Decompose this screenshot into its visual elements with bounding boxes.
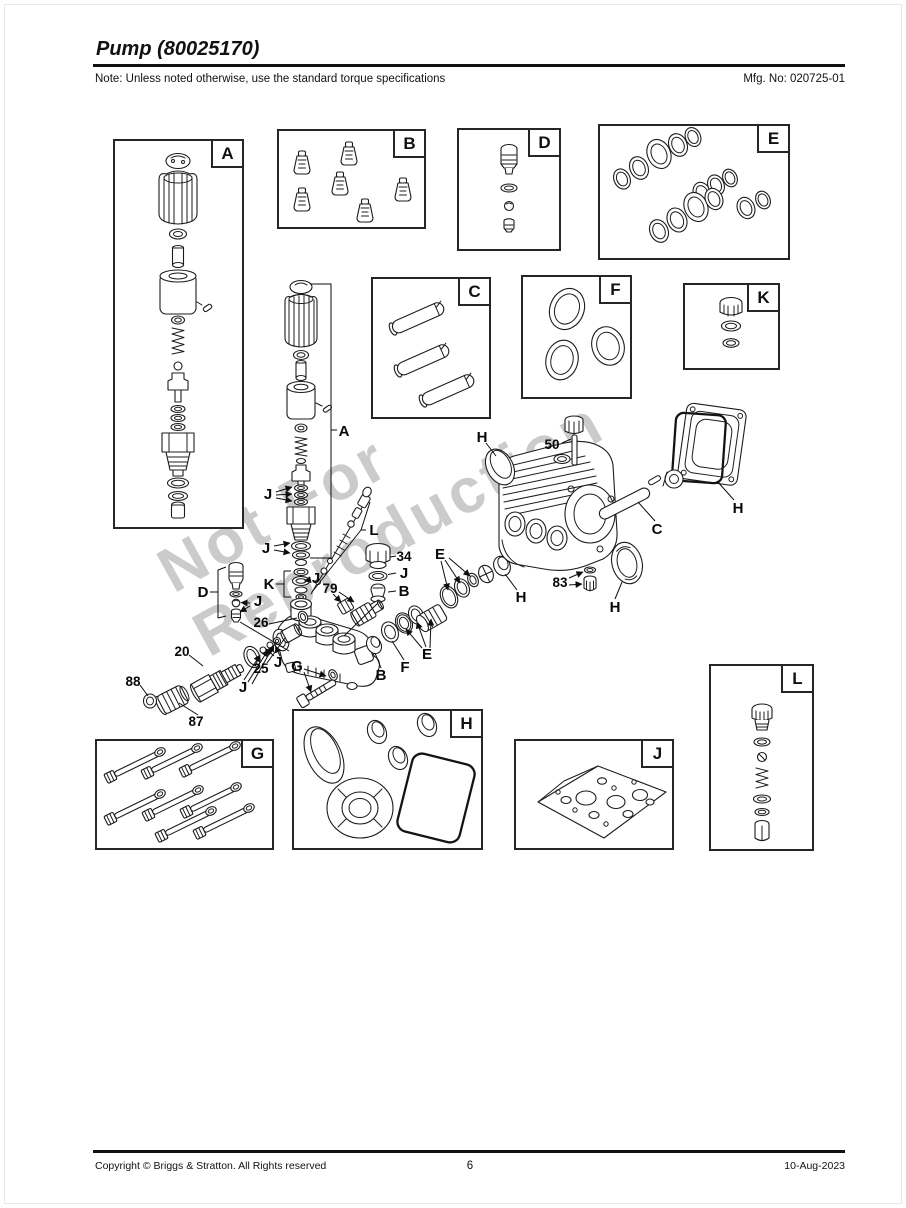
bearing-cover-plate: [672, 402, 747, 486]
callout-j: J: [239, 679, 247, 696]
callout-88: 88: [125, 674, 141, 689]
callout-h: H: [477, 429, 488, 446]
callout-e: E: [435, 546, 445, 563]
header-rule: [93, 64, 845, 67]
mfg-number: Mfg. No: 020725-01: [743, 73, 845, 85]
callout-b: B: [376, 667, 387, 684]
parts-catalog-page: Pump (80025170) Note: Unless noted other…: [0, 0, 906, 1208]
kit-box-l: L: [709, 664, 814, 851]
callout-79: 79: [322, 581, 337, 596]
kit-box-c: C: [371, 277, 491, 419]
kit-box-a-art: [115, 141, 242, 527]
kit-box-g: G: [95, 739, 274, 850]
kit-box-l-label: L: [781, 666, 812, 693]
drain-plug-parts: [584, 567, 596, 591]
unloader-valve-assembly: [285, 281, 332, 566]
kit-box-b-label: B: [393, 131, 424, 158]
callout-e: E: [422, 646, 432, 663]
kit-box-k-label: K: [747, 285, 778, 312]
callout-83: 83: [552, 575, 568, 590]
header-note-row: Note: Unless noted otherwise, use the st…: [95, 73, 845, 85]
callout-g: G: [291, 658, 303, 675]
kit-box-e-label: E: [757, 126, 788, 153]
callout-26: 26: [253, 615, 269, 630]
page-title: Pump (80025170): [96, 38, 259, 61]
kit-box-d: D: [457, 128, 561, 251]
callout-j: J: [262, 540, 270, 557]
callout-34: 34: [396, 549, 412, 564]
callout-h: H: [733, 500, 744, 517]
callout-l: L: [369, 522, 378, 539]
kit-box-c-label: C: [458, 279, 489, 306]
kit-box-j: J: [514, 739, 674, 850]
callout-25: 25: [253, 661, 269, 676]
kit-box-g-label: G: [241, 741, 272, 768]
kit-box-j-label: J: [641, 741, 672, 768]
callout-h: H: [516, 589, 527, 606]
kit-box-b: B: [277, 129, 426, 229]
callout-j: J: [312, 570, 320, 587]
pump-crankcase: [499, 441, 617, 570]
callout-a: A: [339, 423, 350, 440]
torque-note: Note: Unless noted otherwise, use the st…: [95, 73, 445, 85]
unloader-needle-assembly: [311, 486, 373, 594]
page-number: 6: [95, 1160, 845, 1172]
chemical-injection-parts: [366, 544, 390, 606]
piston-seal-stack: [293, 569, 310, 600]
kit-box-h: H: [292, 709, 483, 850]
callout-j: J: [400, 565, 408, 582]
kit-box-f-label: F: [599, 277, 630, 304]
callout-f: F: [400, 659, 409, 676]
kit-box-h-label: H: [450, 711, 481, 738]
callout-h: H: [610, 599, 621, 616]
kit-box-e: E: [598, 124, 790, 260]
kit-box-a-label: A: [211, 141, 242, 168]
kit-box-l-art: [711, 666, 812, 849]
callout-50: 50: [544, 437, 559, 452]
callout-20: 20: [174, 644, 189, 659]
callout-b: B: [399, 583, 410, 600]
kit-box-a: A: [113, 139, 244, 529]
footer-rule: [93, 1150, 845, 1153]
footer-date: 10-Aug-2023: [784, 1160, 845, 1172]
kit-box-f: F: [521, 275, 632, 399]
callout-j: J: [264, 486, 272, 503]
callout-j: J: [274, 654, 282, 671]
outlet-fitting-parts: [337, 597, 386, 628]
callout-k: K: [264, 576, 275, 593]
thermal-relief-parts: [229, 563, 243, 623]
callout-j: J: [254, 593, 262, 610]
piston-seal-chain: [364, 554, 514, 657]
callout-d: D: [198, 584, 209, 601]
callout-87: 87: [188, 714, 203, 729]
kit-box-d-label: D: [528, 130, 559, 157]
kit-box-k: K: [683, 283, 780, 370]
callout-c: C: [652, 521, 663, 538]
